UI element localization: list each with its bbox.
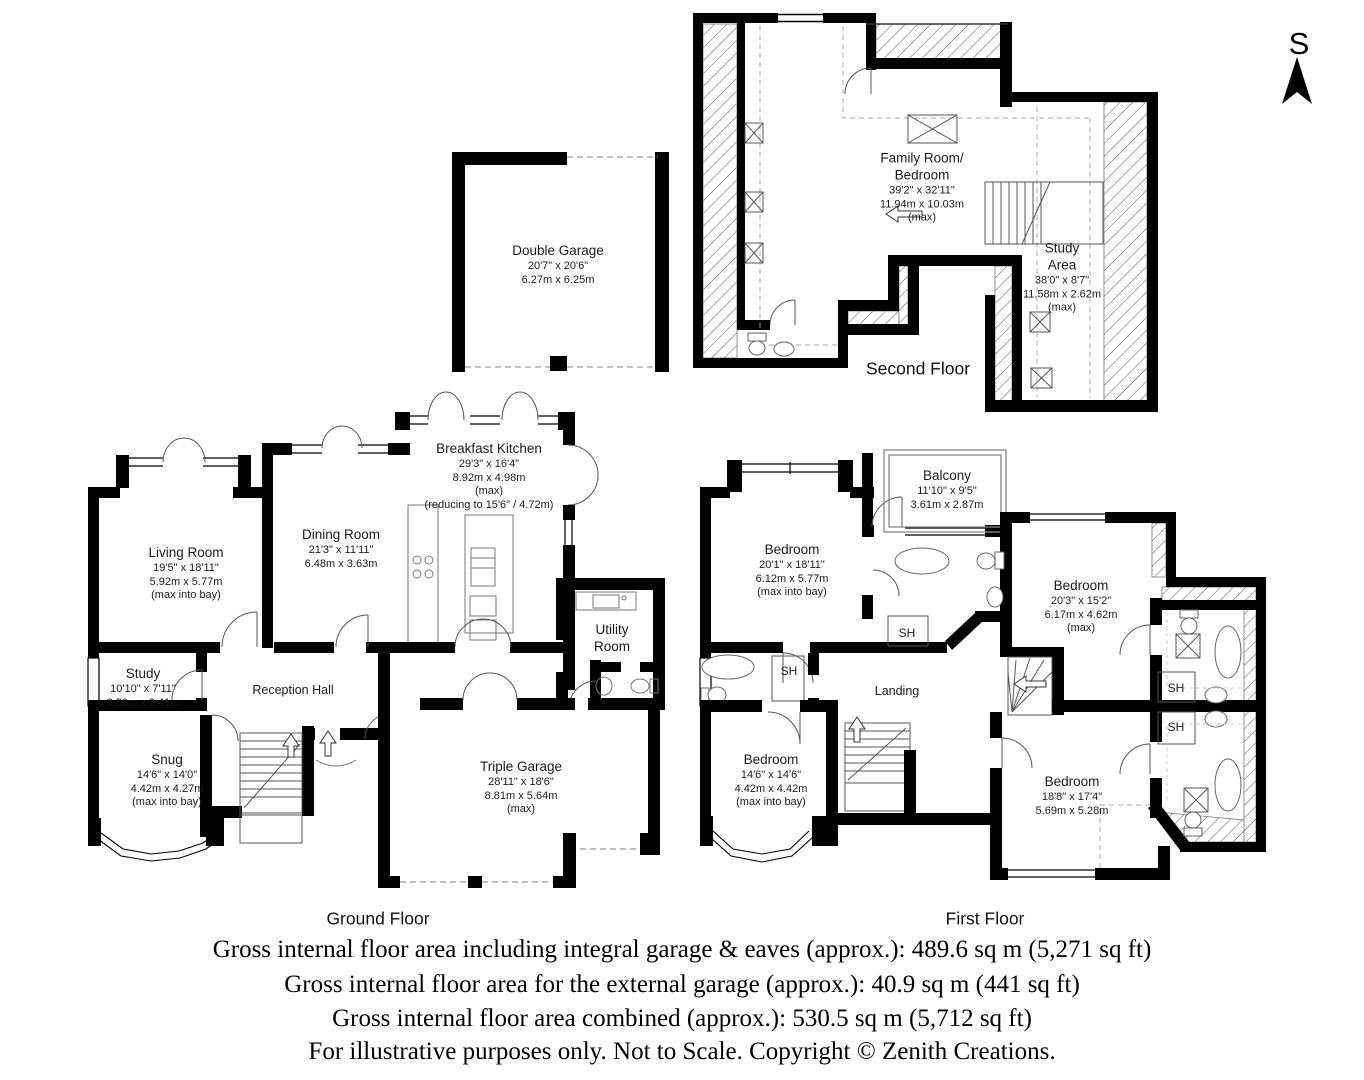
floorplan-page: { "compass": { "label": "S" }, "floors":… [0, 0, 1364, 1080]
room-label-study: Study10'10" x 7'11"3.30m x 2.41m [107, 666, 180, 710]
footer-area-external-garage: Gross internal floor area for the extern… [0, 971, 1364, 999]
stairs-up-arrow-first [849, 717, 865, 742]
room-label-double-garage: Double Garage20'7" x 20'6"6.27m x 6.25m [512, 243, 604, 287]
room-label-living-room: Living Room19'5" x 18'11"5.92m x 5.77m(m… [148, 545, 223, 603]
room-label-utility-room: UtilityRoom [594, 622, 630, 656]
entry-arrow [320, 731, 336, 756]
north-arrow [1282, 57, 1312, 104]
room-label-bedroom-1: Bedroom20'1" x 18'11"6.12m x 5.77m(max i… [756, 542, 829, 600]
room-label-snug: Snug14'6" x 14'0"4.42m x 4.27m(max into … [131, 752, 204, 810]
floorplan-canvas: S Double Garage20'7" x 20'6"6.27m x 6.25… [0, 0, 1364, 1080]
room-label-dining-room: Dining Room21'3" x 11'11"6.48m x 3.63m [302, 527, 380, 571]
ground-floor-plan [88, 392, 665, 888]
shower-label-2: SH [781, 664, 798, 678]
room-label-bedroom-4: Bedroom18'8" x 17'4"5.69m x 5.28m [1036, 774, 1109, 818]
footer-area-combined: Gross internal floor area combined (appr… [0, 1005, 1364, 1033]
room-label-reception-hall: Reception Hall [252, 683, 333, 697]
room-label-triple-garage: Triple Garage28'11" x 18'6"8.81m x 5.64m… [480, 759, 562, 817]
room-label-bedroom-2: Bedroom20'3" x 15'2"6.17m x 4.62m(max) [1045, 578, 1118, 636]
footer-area-total: Gross internal floor area including inte… [0, 936, 1364, 964]
second-floor-stairs [985, 182, 1103, 244]
first-floor-title: First Floor [946, 909, 1025, 930]
room-label-study-area: StudyArea38'0" x 8'7"11.58m x 2.62m(max) [1023, 241, 1101, 316]
compass-label: S [1289, 26, 1310, 62]
winder-arrow [1014, 676, 1046, 692]
room-label-family-room: Family Room/Bedroom39'2" x 32'11"11.94m … [880, 151, 964, 226]
floorplan-drawing [0, 0, 1364, 1080]
shower-label-4: SH [1168, 720, 1185, 734]
room-label-balcony: Balcony11'10" x 9'5"3.61m x 2.87m [911, 468, 984, 512]
room-label-bedroom-3: Bedroom14'6" x 14'6"4.42m x 4.42m(max in… [735, 752, 808, 810]
stairs-up-arrow [283, 734, 299, 757]
room-label-breakfast-kitchen: Breakfast Kitchen29'3" x 16'4"8.92m x 4.… [425, 441, 554, 513]
shower-label-1: SH [899, 626, 916, 640]
room-label-landing: Landing [875, 684, 920, 698]
second-floor-title: Second Floor [866, 359, 970, 380]
shower-label-3: SH [1168, 681, 1185, 695]
ground-floor-title: Ground Floor [326, 909, 429, 930]
footer-disclaimer: For illustrative purposes only. Not to S… [0, 1038, 1364, 1066]
